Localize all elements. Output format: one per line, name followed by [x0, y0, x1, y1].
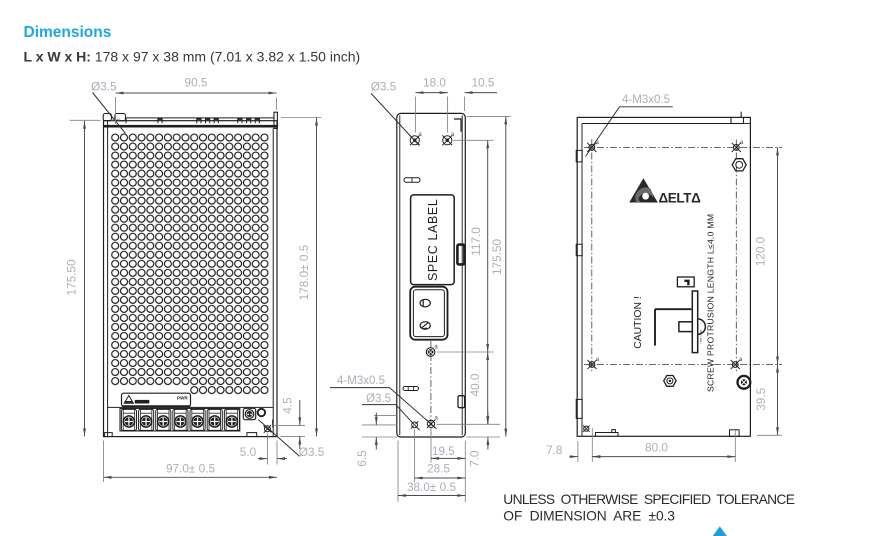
svg-text:4-M3x0.5: 4-M3x0.5: [622, 94, 670, 106]
svg-text:Ø3.5: Ø3.5: [366, 393, 391, 405]
svg-text:10.5: 10.5: [472, 76, 495, 90]
svg-text:UNLESS OTHERWISE SPECIFIED: UNLESS OTHERWISE SPECIFIED TOLERANCE: [503, 492, 795, 507]
svg-text:40.0: 40.0: [468, 373, 482, 396]
svg-text:SPEC LABEL: SPEC LABEL: [426, 199, 440, 281]
svg-text:117.0: 117.0: [469, 227, 483, 256]
svg-text:Ø3.5: Ø3.5: [91, 80, 117, 94]
svg-text:CAUTION !: CAUTION !: [633, 296, 644, 349]
svg-text:7.0: 7.0: [468, 450, 482, 467]
svg-text:OF DIMENSION ARE ±0.3: OF DIMENSION ARE ±0.3: [503, 508, 675, 523]
svg-text:120.0: 120.0: [753, 236, 767, 266]
svg-text:39.5: 39.5: [754, 387, 768, 410]
svg-text:175.50: 175.50: [64, 259, 78, 296]
svg-text:80.0: 80.0: [645, 441, 668, 455]
svg-text:PWR: PWR: [177, 395, 188, 400]
svg-text:5.0: 5.0: [240, 445, 257, 459]
svg-text:6.5: 6.5: [355, 450, 369, 467]
svg-text:97.0± 0.5: 97.0± 0.5: [166, 461, 216, 475]
svg-text:178.0± 0.5: 178.0± 0.5: [297, 244, 311, 300]
svg-text:SCREW PROTRUSION LENGTH L≤4.0: SCREW PROTRUSION LENGTH L≤4.0 MM: [706, 214, 716, 392]
svg-text:Ø3.5: Ø3.5: [299, 445, 325, 459]
svg-text:18.0: 18.0: [423, 76, 446, 90]
svg-text:L x W x H: 178 x 97 x 38 mm (7: L x W x H: 178 x 97 x 38 mm (7.01 x 3.82…: [24, 49, 361, 65]
svg-text:38.0± 0.5: 38.0± 0.5: [407, 480, 457, 494]
svg-text:ΔELTΔ: ΔELTΔ: [659, 190, 702, 205]
svg-text:4-M3x0.5: 4-M3x0.5: [337, 375, 385, 387]
svg-text:Ø3.5: Ø3.5: [371, 80, 397, 94]
svg-text:Dimensions: Dimensions: [24, 24, 112, 41]
svg-text:175.50: 175.50: [490, 239, 504, 276]
svg-text:4.5: 4.5: [280, 397, 294, 414]
svg-text:19.5: 19.5: [432, 444, 455, 458]
svg-text:90.5: 90.5: [185, 76, 208, 90]
svg-text:28.5: 28.5: [427, 461, 450, 475]
svg-text:7.8: 7.8: [546, 443, 563, 457]
